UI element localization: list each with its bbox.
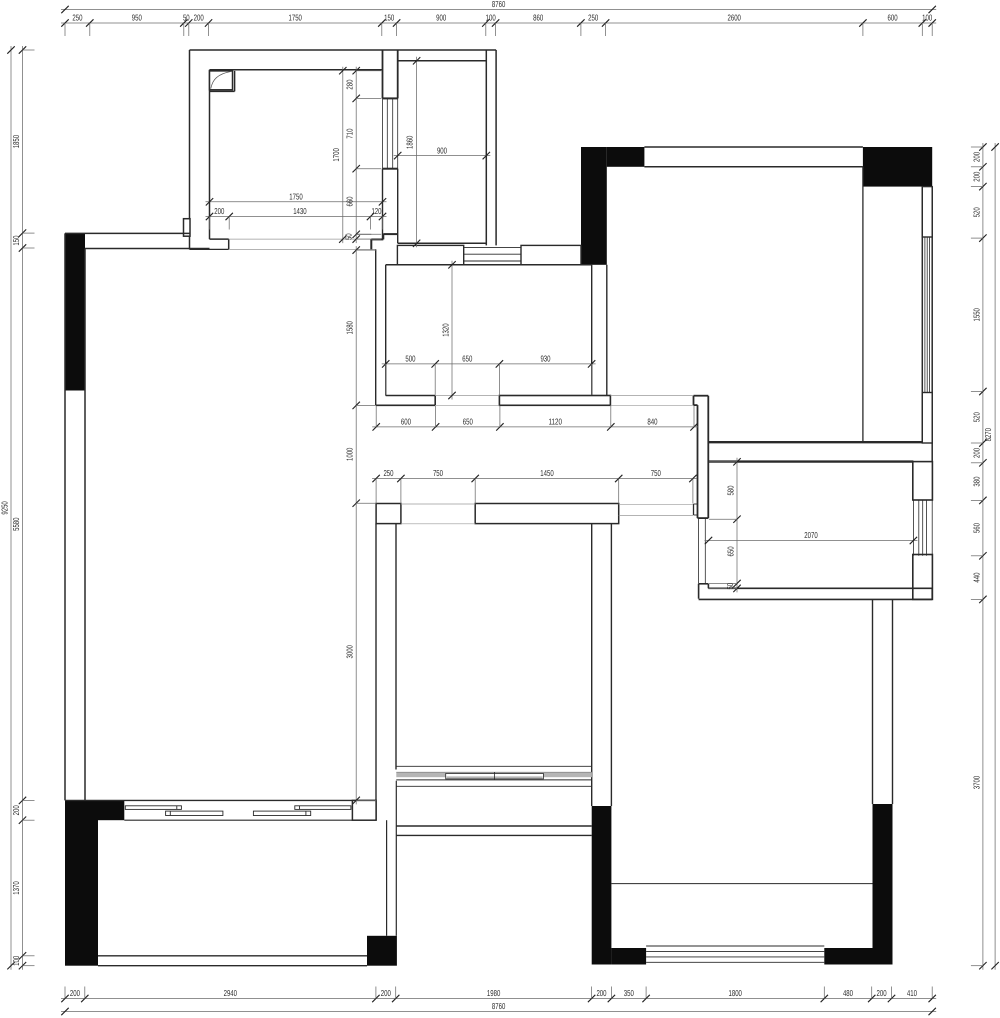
svg-text:1430: 1430 — [293, 206, 307, 216]
svg-text:200: 200 — [381, 988, 391, 998]
svg-text:1700: 1700 — [331, 148, 341, 162]
svg-text:1120: 1120 — [549, 417, 563, 427]
svg-text:8760: 8760 — [492, 0, 506, 9]
svg-text:380: 380 — [971, 476, 981, 486]
svg-text:200: 200 — [971, 448, 981, 458]
svg-text:750: 750 — [651, 468, 661, 478]
svg-text:8270: 8270 — [983, 428, 993, 442]
svg-text:900: 900 — [437, 145, 447, 155]
svg-text:3700: 3700 — [971, 776, 981, 790]
svg-text:200: 200 — [971, 152, 981, 162]
svg-text:50: 50 — [725, 583, 735, 590]
svg-text:3000: 3000 — [345, 645, 355, 659]
svg-text:600: 600 — [401, 417, 411, 427]
svg-text:520: 520 — [971, 207, 981, 217]
svg-text:50: 50 — [183, 13, 190, 23]
svg-text:580: 580 — [725, 485, 735, 495]
svg-text:1850: 1850 — [11, 135, 21, 149]
svg-text:1980: 1980 — [487, 988, 501, 998]
svg-text:200: 200 — [971, 171, 981, 181]
svg-text:1450: 1450 — [540, 468, 554, 478]
svg-text:280: 280 — [345, 79, 355, 89]
svg-text:560: 560 — [971, 523, 981, 533]
svg-text:860: 860 — [533, 13, 543, 23]
svg-text:2600: 2600 — [728, 13, 742, 23]
svg-text:250: 250 — [72, 13, 82, 23]
svg-text:600: 600 — [888, 13, 898, 23]
svg-text:200: 200 — [11, 805, 21, 815]
svg-text:650: 650 — [463, 417, 473, 427]
svg-text:2940: 2940 — [224, 988, 238, 998]
svg-text:100: 100 — [922, 13, 932, 23]
svg-text:520: 520 — [971, 412, 981, 422]
svg-text:1320: 1320 — [440, 323, 450, 337]
svg-text:150: 150 — [11, 235, 21, 245]
svg-text:200: 200 — [596, 988, 606, 998]
svg-text:200: 200 — [194, 13, 204, 23]
svg-text:100: 100 — [486, 13, 496, 23]
svg-text:1550: 1550 — [971, 308, 981, 322]
svg-text:1750: 1750 — [289, 13, 303, 23]
svg-text:200: 200 — [214, 206, 224, 216]
svg-text:410: 410 — [907, 988, 917, 998]
svg-text:900: 900 — [436, 13, 446, 23]
svg-text:150: 150 — [384, 13, 394, 23]
svg-text:200: 200 — [70, 988, 80, 998]
svg-text:250: 250 — [383, 468, 393, 478]
svg-text:840: 840 — [647, 417, 657, 427]
svg-text:650: 650 — [725, 546, 735, 556]
svg-text:480: 480 — [843, 988, 853, 998]
svg-text:1860: 1860 — [404, 135, 414, 149]
svg-text:1580: 1580 — [345, 321, 355, 335]
svg-text:350: 350 — [624, 988, 634, 998]
svg-text:650: 650 — [462, 354, 472, 364]
svg-text:1000: 1000 — [345, 447, 355, 461]
svg-text:750: 750 — [433, 468, 443, 478]
svg-text:660: 660 — [345, 196, 355, 206]
svg-text:2070: 2070 — [804, 530, 818, 540]
svg-text:9250: 9250 — [0, 501, 9, 515]
svg-text:250: 250 — [588, 13, 598, 23]
svg-text:1800: 1800 — [729, 988, 743, 998]
svg-text:950: 950 — [132, 13, 142, 23]
svg-text:440: 440 — [971, 572, 981, 582]
svg-text:930: 930 — [540, 354, 550, 364]
svg-text:5580: 5580 — [11, 517, 21, 531]
svg-text:1750: 1750 — [289, 192, 303, 202]
svg-text:1370: 1370 — [11, 881, 21, 895]
svg-text:120: 120 — [371, 206, 381, 216]
svg-text:500: 500 — [405, 354, 415, 364]
svg-text:8760: 8760 — [492, 1001, 506, 1011]
svg-text:200: 200 — [877, 988, 887, 998]
svg-text:710: 710 — [345, 128, 355, 138]
